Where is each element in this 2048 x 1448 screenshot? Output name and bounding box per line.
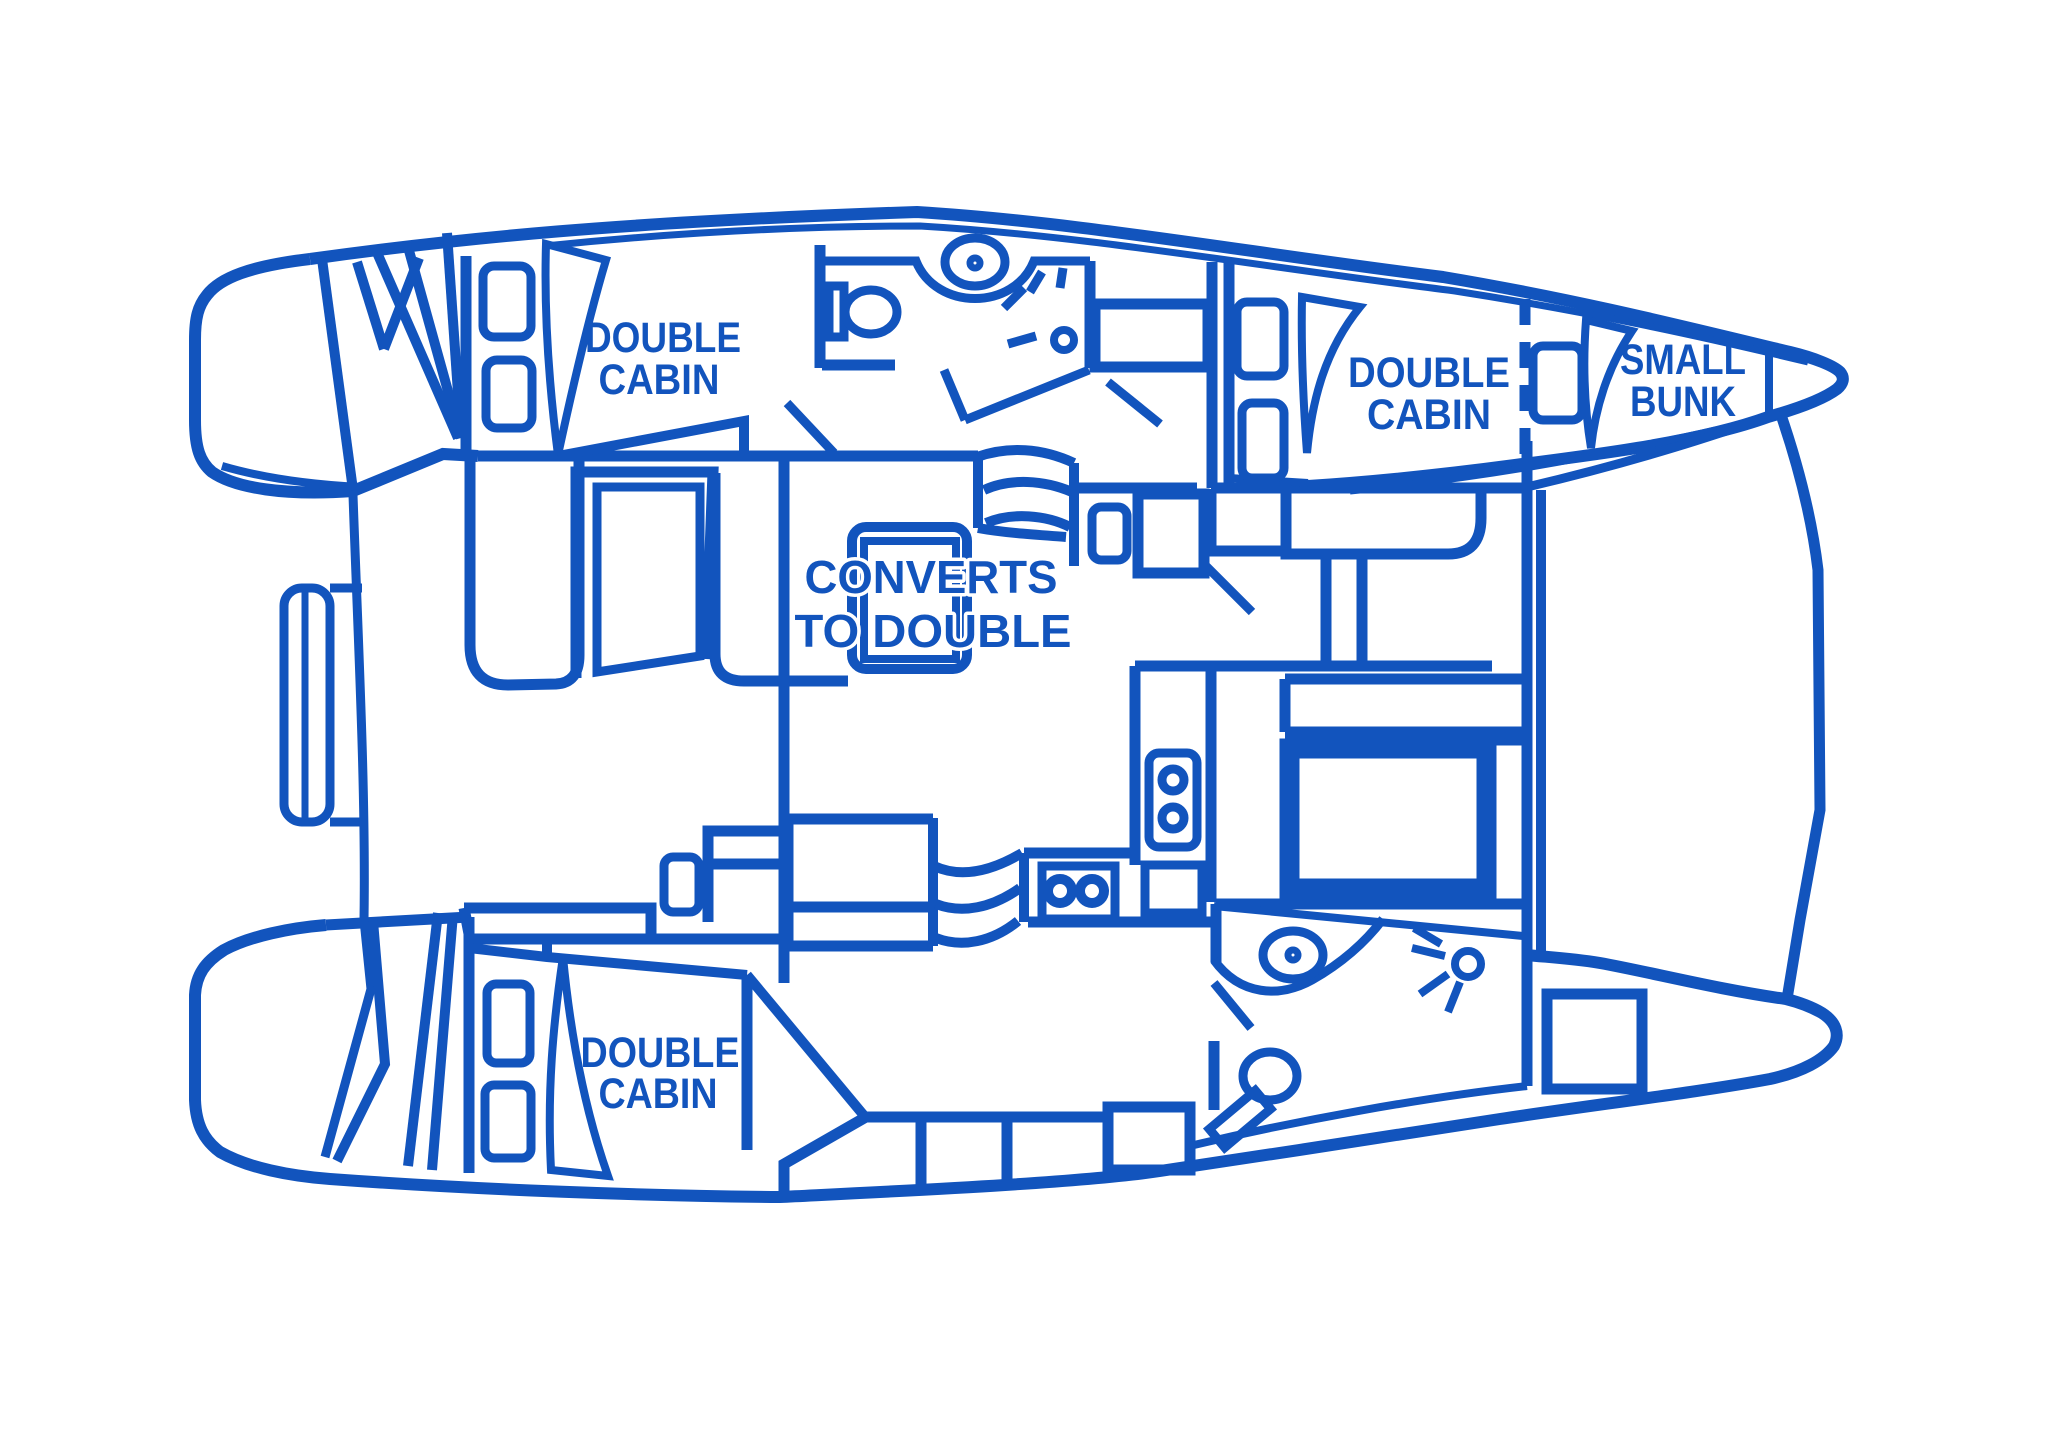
svg-text:DOUBLE: DOUBLE	[585, 314, 741, 362]
svg-text:SMALL: SMALL	[1620, 336, 1746, 384]
svg-text:BUNK: BUNK	[1630, 378, 1736, 426]
svg-text:CONVERTS: CONVERTS	[805, 551, 1058, 603]
svg-text:DOUBLE: DOUBLE	[1348, 349, 1510, 397]
svg-text:TO DOUBLE: TO DOUBLE	[795, 605, 1072, 657]
svg-text:CABIN: CABIN	[1367, 391, 1491, 439]
svg-text:CABIN: CABIN	[599, 1070, 718, 1118]
svg-text:CABIN: CABIN	[599, 356, 720, 404]
